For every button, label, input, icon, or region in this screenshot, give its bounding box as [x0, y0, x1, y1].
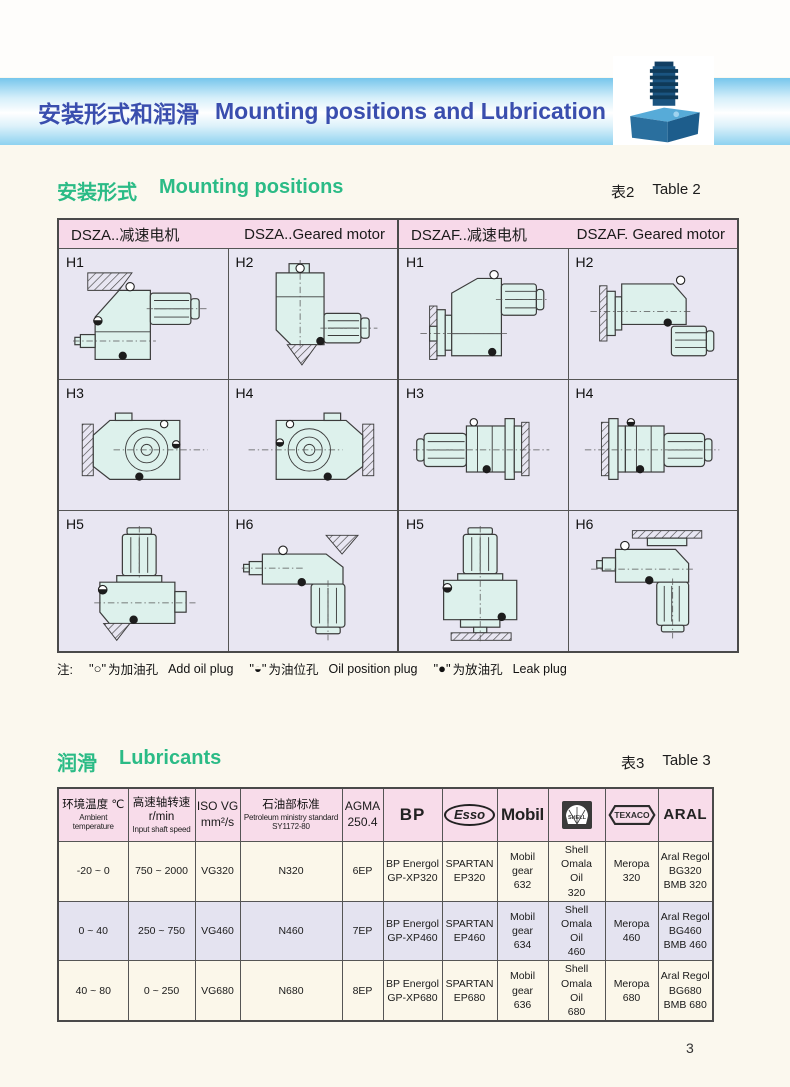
cell-aral: Aral Regol BG460 BMB 460	[658, 901, 713, 961]
cell-isovg: VG460	[195, 901, 240, 961]
cell-agma: 8EP	[342, 961, 383, 1021]
mounting-positions-table: DSZA..减速电机 DSZA..Geared motor DSZAF..减速电…	[57, 218, 739, 653]
t2-header-dszaf-en: DSZAF. Geared motor	[577, 226, 725, 243]
t3-row-460: 0 ~ 40 250 ~ 750 VG460 N460 7EP BP Energ…	[58, 901, 713, 961]
cell-aral: Aral Regol BG320 BMB 320	[658, 842, 713, 902]
section-title-mounting-zh: 安装形式	[57, 176, 137, 205]
aral-logo: ARAL	[663, 806, 707, 823]
diagram-dszaf-h1	[408, 260, 558, 376]
cell-shell: Shell Omala Oil 320	[548, 842, 605, 902]
diagram-dsza-h3	[68, 391, 218, 507]
t3-row-320: -20 ~ 0 750 ~ 2000 VG320 N320 6EP BP Ene…	[58, 842, 713, 902]
t3-col-iso-vg: ISO VG mm²/s	[195, 788, 240, 842]
diagram-dszaf-h2	[578, 260, 728, 376]
cell-std: N680	[240, 961, 342, 1021]
cell-mobil: Mobil gear 634	[497, 901, 548, 961]
t2-cell-dszaf-h3: H3	[398, 380, 568, 511]
legend-note: 注: "○" 为加油孔 Add oil plug "◒" 为油位孔 Oil po…	[57, 659, 567, 678]
t3-col-mobil: Mobil	[497, 788, 548, 842]
diagram-dszaf-h3	[408, 391, 558, 507]
t2-cell-dsza-h2: H2	[228, 249, 398, 380]
product-photo	[613, 56, 714, 145]
cell-aral: Aral Regol BG680 BMB 680	[658, 961, 713, 1021]
t3-col-bp: BP	[383, 788, 442, 842]
t3-row-680: 40 ~ 80 0 ~ 250 VG680 N680 8EP BP Energo…	[58, 961, 713, 1021]
note-add-oil-zh: 为加油孔	[108, 659, 158, 678]
section-title-lubricants: 润滑 Lubricants	[57, 747, 221, 776]
gear-motor-image	[617, 59, 711, 145]
cell-esso: SPARTAN EP680	[442, 961, 497, 1021]
diagram-dsza-h5	[68, 523, 218, 647]
cell-agma: 6EP	[342, 842, 383, 902]
note-leak-zh: 为放油孔	[453, 659, 503, 678]
t2-cell-dsza-h1: H1	[58, 249, 228, 380]
cell-ambient: 40 ~ 80	[58, 961, 128, 1021]
t3-col-aral: ARAL	[658, 788, 713, 842]
header-band-right	[714, 78, 790, 145]
t2-cell-dsza-h3: H3	[58, 380, 228, 511]
diagram-dszaf-h4	[578, 391, 728, 507]
t2-cell-dszaf-h6: H6	[568, 511, 738, 653]
cell-bp: BP Energol GP-XP460	[383, 901, 442, 961]
t2-cell-dszaf-h5: H5	[398, 511, 568, 653]
cell-esso: SPARTAN EP460	[442, 901, 497, 961]
table2-ref-en: Table 2	[652, 181, 700, 202]
table3-ref-zh: 表3	[621, 752, 644, 773]
note-add-oil-en: Add oil plug	[168, 662, 233, 676]
diagram-dszaf-h6	[578, 523, 728, 647]
t2-cell-dsza-h5: H5	[58, 511, 228, 653]
esso-logo: Esso	[444, 804, 495, 826]
t2-cell-dszaf-h1: H1	[398, 249, 568, 380]
cell-speed: 0 ~ 250	[128, 961, 195, 1021]
t3-col-petroleum-std: 石油部标准 Petroleum ministry standard SY1172…	[240, 788, 342, 842]
table3-ref-en: Table 3	[662, 752, 710, 773]
diagram-dsza-h6	[238, 523, 388, 647]
leak-plug-icon: "●"	[433, 661, 450, 676]
note-oil-position-zh: 为油位孔	[269, 659, 319, 678]
t2-cell-dsza-h6: H6	[228, 511, 398, 653]
cell-texaco: Meropa 320	[605, 842, 658, 902]
t2-cell-dszaf-h4: H4	[568, 380, 738, 511]
cell-shell: Shell Omala Oil 680	[548, 961, 605, 1021]
cell-std: N320	[240, 842, 342, 902]
t2-header-dsza: DSZA..减速电机 DSZA..Geared motor	[58, 219, 398, 249]
diagram-dsza-h4	[238, 391, 388, 507]
t2-header-dszaf: DSZAF..减速电机 DSZAF. Geared motor	[398, 219, 738, 249]
cell-isovg: VG680	[195, 961, 240, 1021]
cell-ambient: -20 ~ 0	[58, 842, 128, 902]
cell-bp: BP Energol GP-XP680	[383, 961, 442, 1021]
t2-cell-dsza-h4: H4	[228, 380, 398, 511]
diagram-dszaf-h5	[408, 523, 558, 647]
table2-reference: 表2 Table 2	[611, 181, 701, 202]
lubricants-table: 环境温度 ℃ Ambient temperature 高速轴转速 r/min I…	[57, 787, 714, 1022]
t3-col-esso: Esso	[442, 788, 497, 842]
page-number: 3	[686, 1040, 694, 1056]
cell-speed: 750 ~ 2000	[128, 842, 195, 902]
t3-col-shell: SHELL	[548, 788, 605, 842]
t2-cell-dszaf-h2: H2	[568, 249, 738, 380]
t3-col-agma: AGMA 250.4	[342, 788, 383, 842]
page-title-en: Mounting positions and Lubrication	[215, 98, 606, 125]
shell-logo: SHELL	[562, 801, 592, 829]
texaco-logo: TEXACO	[607, 803, 657, 827]
section-title-lubricants-zh: 润滑	[57, 747, 97, 776]
t2-header-dszaf-zh: DSZAF..减速电机	[411, 224, 527, 245]
catalog-page: 安装形式和润滑 Mounting positions and Lubricati…	[0, 0, 790, 1087]
cell-texaco: Meropa 460	[605, 901, 658, 961]
page-title: 安装形式和润滑 Mounting positions and Lubricati…	[38, 78, 606, 145]
svg-text:SHELL: SHELL	[567, 815, 586, 821]
cell-isovg: VG320	[195, 842, 240, 902]
page-title-zh: 安装形式和润滑	[38, 95, 199, 129]
section-title-lubricants-en: Lubricants	[119, 747, 221, 776]
table3-reference: 表3 Table 3	[621, 752, 711, 773]
t2-header-dsza-en: DSZA..Geared motor	[244, 226, 385, 243]
cell-mobil: Mobil gear 636	[497, 961, 548, 1021]
note-oil-position-en: Oil position plug	[329, 662, 418, 676]
diagram-dsza-h1	[68, 260, 218, 376]
diagram-dsza-h2	[238, 260, 388, 376]
table2-ref-zh: 表2	[611, 181, 634, 202]
oil-position-plug-icon: "◒"	[249, 661, 266, 676]
section-title-mounting-en: Mounting positions	[159, 176, 343, 205]
section-title-mounting: 安装形式 Mounting positions	[57, 176, 343, 205]
t3-col-input-speed: 高速轴转速 r/min Input shaft speed	[128, 788, 195, 842]
cell-texaco: Meropa 680	[605, 961, 658, 1021]
cell-std: N460	[240, 901, 342, 961]
cell-bp: BP Energol GP-XP320	[383, 842, 442, 902]
note-leak-en: Leak plug	[513, 662, 567, 676]
cell-esso: SPARTAN EP320	[442, 842, 497, 902]
cell-mobil: Mobil gear 632	[497, 842, 548, 902]
t2-header-dsza-zh: DSZA..减速电机	[71, 224, 179, 245]
cell-shell: Shell Omala Oil 460	[548, 901, 605, 961]
bp-logo: BP	[400, 805, 426, 824]
cell-speed: 250 ~ 750	[128, 901, 195, 961]
note-prefix: 注:	[57, 659, 73, 678]
mobil-logo: Mobil	[501, 805, 544, 824]
cell-agma: 7EP	[342, 901, 383, 961]
cell-ambient: 0 ~ 40	[58, 901, 128, 961]
t3-col-ambient-temp: 环境温度 ℃ Ambient temperature	[58, 788, 128, 842]
t3-col-texaco: TEXACO	[605, 788, 658, 842]
add-oil-plug-icon: "○"	[89, 661, 106, 676]
svg-text:TEXACO: TEXACO	[614, 810, 650, 820]
